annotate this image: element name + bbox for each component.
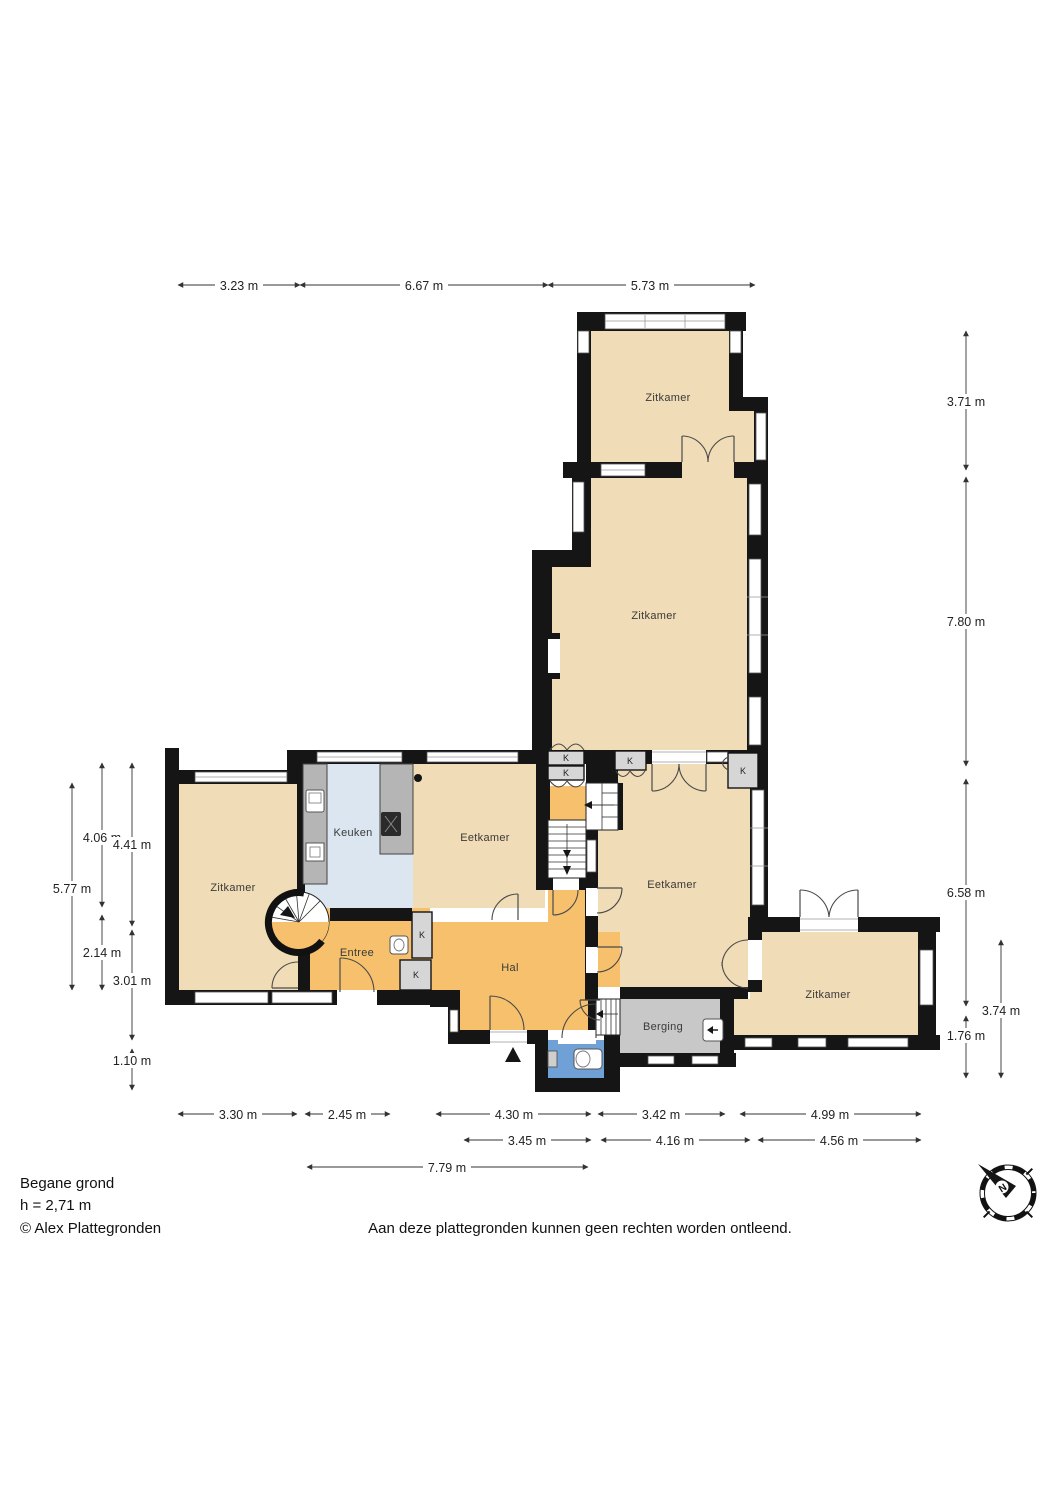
entrance-marker-icon — [505, 1047, 521, 1062]
window — [848, 1038, 908, 1047]
dim-bottom2-2: 4.16 m — [656, 1134, 694, 1148]
window — [749, 559, 761, 673]
closet-label: K — [627, 756, 633, 766]
window — [195, 992, 268, 1003]
stair-landing — [548, 786, 586, 820]
dim-right-4: 1.76 m — [947, 1029, 985, 1043]
window — [573, 482, 584, 532]
cellar-steps — [596, 999, 620, 1035]
dim-left-5: 3.01 m — [113, 974, 151, 988]
door-gap — [553, 878, 579, 890]
wall-segment — [729, 397, 768, 411]
window — [648, 1056, 674, 1064]
window — [587, 840, 596, 872]
window — [749, 484, 761, 535]
window — [450, 1010, 458, 1032]
dishwasher — [306, 843, 324, 861]
dim-bottom3-1: 7.79 m — [428, 1161, 466, 1175]
window — [745, 1038, 772, 1047]
floor-height: h = 2,71 m — [20, 1197, 91, 1214]
window — [605, 314, 725, 329]
room-label-eetkamer-left: Eetkamer — [460, 832, 510, 844]
dim-top-1: 3.23 m — [220, 279, 258, 293]
window — [578, 331, 589, 353]
dim-right-5: 3.74 m — [982, 1004, 1020, 1018]
room-label-eetkamer-right: Eetkamer — [647, 879, 697, 891]
door — [829, 890, 858, 917]
window — [272, 992, 332, 1003]
floorplan-page: Zitkamer Zitkamer Zitkamer Keuken Eetkam… — [0, 0, 1060, 1500]
floorplan-canvas: Zitkamer Zitkamer Zitkamer Keuken Eetkam… — [0, 0, 1060, 1500]
room-label-zitkamer-left: Zitkamer — [210, 882, 255, 894]
window — [749, 697, 761, 745]
dim-bottom1-1: 3.30 m — [219, 1108, 257, 1122]
dim-bottom2-3: 4.56 m — [820, 1134, 858, 1148]
fireplace-niche — [548, 633, 560, 679]
wall-segment — [298, 952, 310, 992]
room-label-zitkamer-bottom: Zitkamer — [805, 989, 850, 1001]
dim-bottom2-1: 3.45 m — [508, 1134, 546, 1148]
room-label-hal: Hal — [501, 962, 518, 974]
door-gap — [586, 947, 598, 973]
dim-bottom1-4: 3.42 m — [642, 1108, 680, 1122]
wall-segment — [535, 1078, 620, 1092]
footer: Begane grond h = 2,71 m © Alex Plattegro… — [20, 1175, 792, 1237]
closet-label: K — [563, 768, 569, 778]
room-label-keuken: Keuken — [333, 827, 372, 839]
room-label-entree: Entree — [340, 947, 374, 959]
dim-left-2: 4.41 m — [113, 838, 151, 852]
kitchen-counter — [303, 764, 327, 884]
door-gap — [337, 990, 377, 1005]
dim-right-2: 7.80 m — [947, 615, 985, 629]
window — [707, 752, 728, 762]
room-label-zitkamer-top: Zitkamer — [645, 392, 690, 404]
wall-segment — [165, 748, 179, 1005]
door-gap — [598, 987, 620, 999]
dim-right-3: 6.58 m — [947, 886, 985, 900]
door — [800, 890, 829, 917]
closet-label: K — [413, 970, 419, 980]
dim-right-1: 3.71 m — [947, 395, 985, 409]
room-label-zitkamer-mid: Zitkamer — [631, 610, 676, 622]
dim-left-6: 1.10 m — [113, 1054, 151, 1068]
dim-bottom1-3: 4.30 m — [495, 1108, 533, 1122]
wall-segment — [734, 462, 768, 478]
disclaimer: Aan deze plattegronden kunnen geen recht… — [368, 1220, 792, 1237]
wall-segment — [586, 764, 618, 783]
door-gap — [748, 940, 762, 980]
column-dot — [414, 774, 422, 782]
window — [752, 790, 764, 905]
wall-segment — [748, 925, 762, 940]
window — [692, 1056, 718, 1064]
closet-label: K — [740, 766, 746, 776]
dim-left-3: 5.77 m — [53, 882, 91, 896]
window — [798, 1038, 826, 1047]
wall-segment — [532, 550, 591, 567]
dim-bottom1-5: 4.99 m — [811, 1108, 849, 1122]
wc-basin — [548, 1051, 557, 1067]
compass-icon: N — [978, 1164, 1036, 1221]
copyright: © Alex Plattegronden — [20, 1220, 161, 1237]
door-gap — [586, 888, 598, 916]
kitchen-island — [380, 764, 413, 854]
dim-top-3: 5.73 m — [631, 279, 669, 293]
door-gap — [558, 1030, 596, 1044]
wall-segment — [748, 980, 762, 992]
dim-bottom1-2: 2.45 m — [328, 1108, 366, 1122]
floor-title: Begane grond — [20, 1175, 114, 1192]
closet-label: K — [419, 930, 425, 940]
closet-label: K — [563, 753, 569, 763]
dim-left-4: 2.14 m — [83, 946, 121, 960]
window — [920, 950, 933, 1005]
room-label-berging: Berging — [643, 1021, 683, 1033]
window — [756, 413, 766, 460]
dim-top-2: 6.67 m — [405, 279, 443, 293]
spiral-staircase — [268, 892, 329, 952]
wall-segment — [330, 908, 412, 921]
window — [730, 331, 741, 353]
